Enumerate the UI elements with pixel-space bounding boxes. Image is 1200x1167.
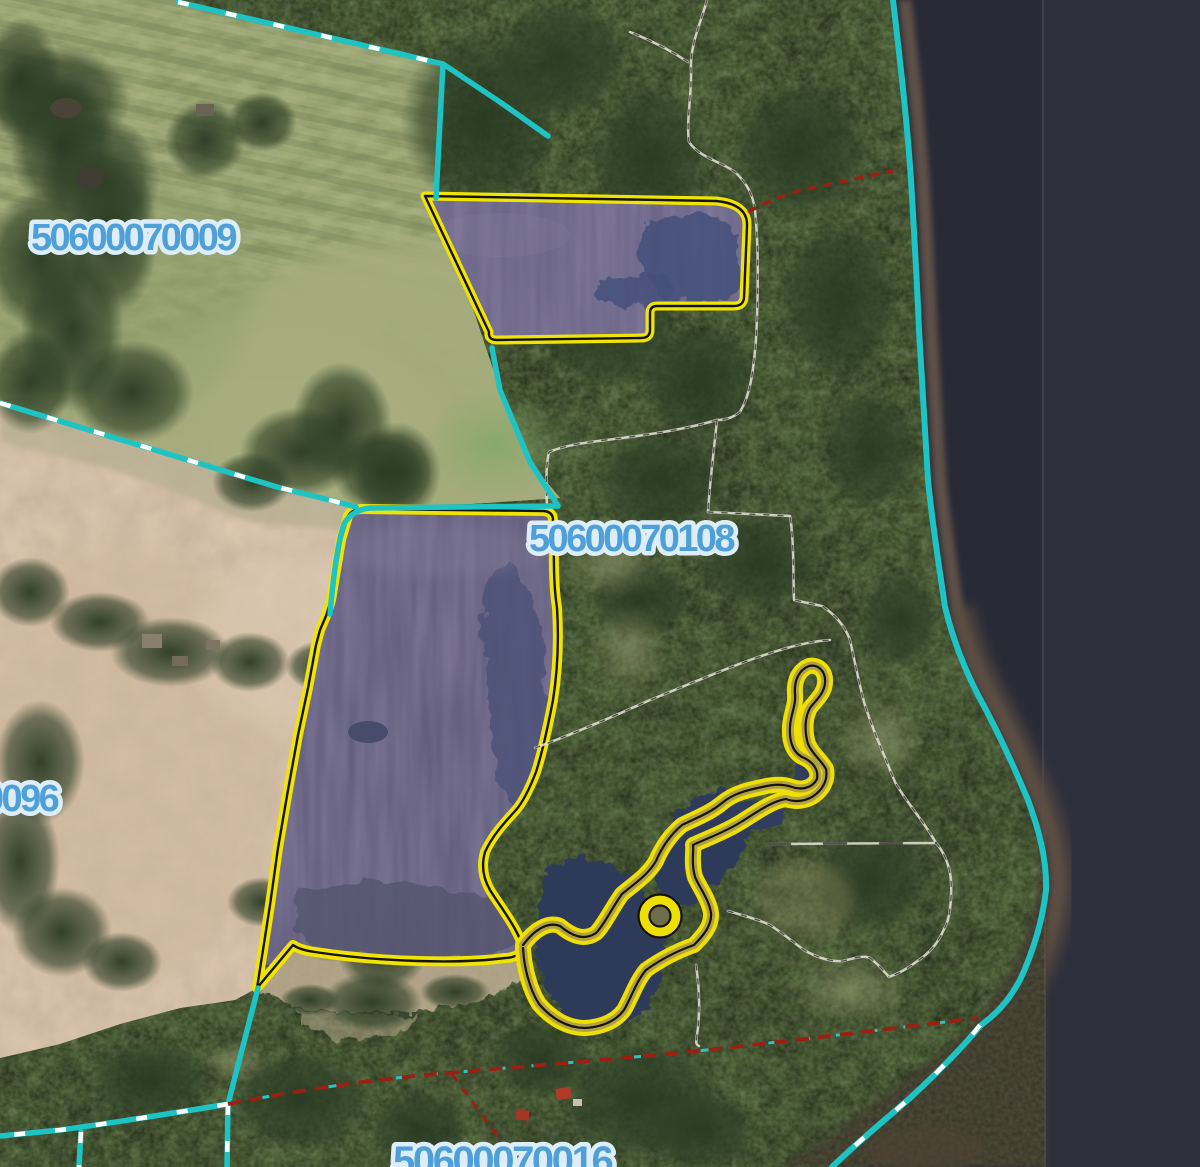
svg-text:50600070016: 50600070016	[393, 1139, 612, 1167]
svg-text:50600070009: 50600070009	[31, 217, 236, 259]
svg-text:50600070108: 50600070108	[529, 518, 734, 560]
svg-text:0096: 0096	[0, 778, 59, 820]
